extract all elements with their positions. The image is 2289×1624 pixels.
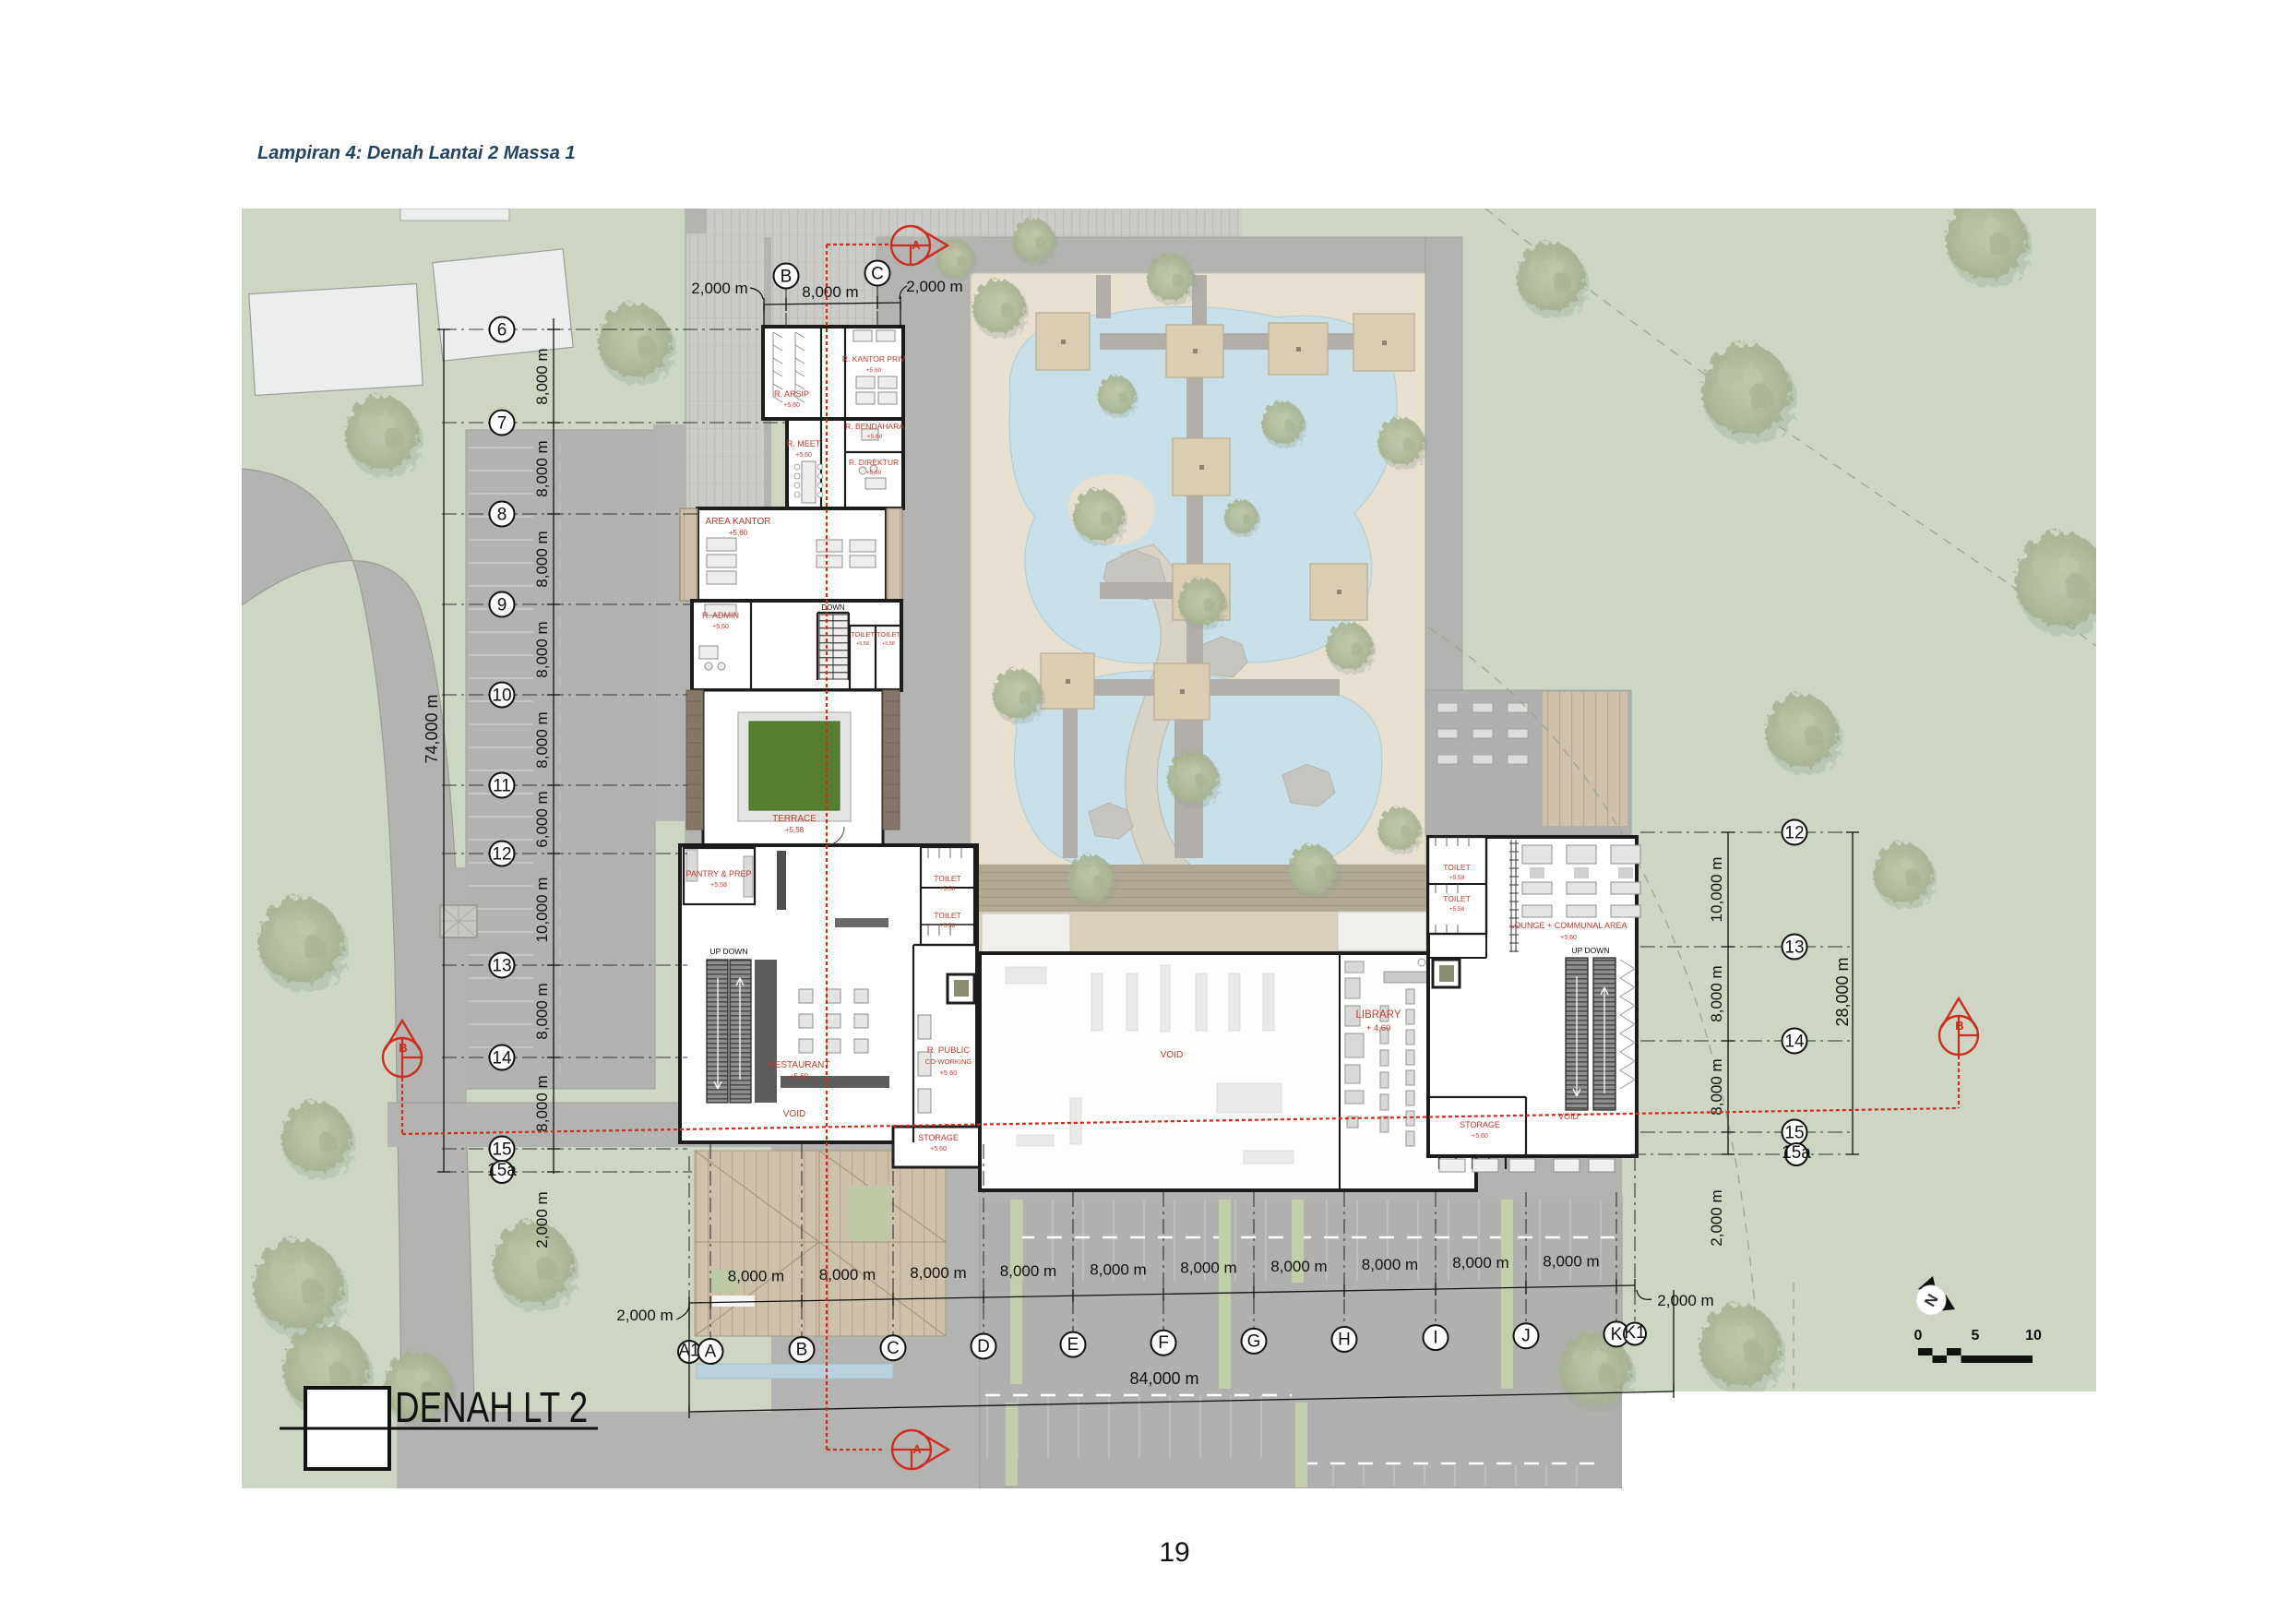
- svg-text:R. KANTOR PRIV: R. KANTOR PRIV: [842, 354, 906, 364]
- svg-text:PANTRY & PREP: PANTRY & PREP: [686, 869, 751, 878]
- svg-text:0: 0: [1914, 1328, 1923, 1343]
- svg-text:K: K: [1611, 1325, 1623, 1344]
- svg-text:R. PUBLIC: R. PUBLIC: [927, 1045, 971, 1056]
- svg-text:19: 19: [1159, 1537, 1189, 1568]
- svg-text:VOID: VOID: [1161, 1050, 1183, 1060]
- svg-text:CO-WORKING: CO-WORKING: [925, 1057, 972, 1066]
- svg-text:8,000 m: 8,000 m: [1180, 1260, 1236, 1277]
- svg-text:B: B: [1955, 1019, 1963, 1033]
- svg-text:TOILET: TOILET: [1443, 863, 1471, 872]
- svg-text:VOID: VOID: [783, 1109, 805, 1119]
- svg-text:8,000 m: 8,000 m: [533, 983, 551, 1039]
- svg-text:A: A: [705, 1343, 717, 1362]
- svg-text:G: G: [1247, 1331, 1261, 1351]
- svg-text:8,000 m: 8,000 m: [1000, 1262, 1056, 1280]
- svg-text:B: B: [399, 1041, 407, 1055]
- svg-text:I: I: [1433, 1329, 1437, 1348]
- svg-text:2,000 m: 2,000 m: [616, 1307, 673, 1324]
- svg-text:D: D: [977, 1337, 990, 1356]
- svg-text:TERRACE: TERRACE: [772, 814, 817, 824]
- svg-text:+5,60: +5,60: [783, 402, 800, 409]
- svg-text:C: C: [887, 1339, 900, 1358]
- svg-text:TOILET: TOILET: [934, 911, 961, 920]
- svg-text:2,000 m: 2,000 m: [1708, 1189, 1725, 1246]
- svg-text:+5,60: +5,60: [866, 470, 882, 476]
- svg-text:9: 9: [497, 596, 507, 615]
- svg-text:8,000 m: 8,000 m: [1708, 1058, 1725, 1115]
- svg-text:8,000 m: 8,000 m: [533, 531, 551, 587]
- svg-text:+5,60: +5,60: [866, 367, 882, 374]
- svg-text:13: 13: [492, 957, 511, 976]
- svg-text:8: 8: [497, 506, 507, 525]
- svg-text:R. DIREKTUR: R. DIREKTUR: [849, 458, 899, 467]
- svg-text:8,000 m: 8,000 m: [802, 283, 858, 301]
- svg-text:+5,58: +5,58: [940, 923, 956, 929]
- svg-text:8,000 m: 8,000 m: [533, 440, 551, 496]
- svg-text:UP DOWN: UP DOWN: [1572, 946, 1610, 955]
- svg-text:+5,58: +5,58: [710, 882, 727, 889]
- svg-text:10,000 m: 10,000 m: [1708, 857, 1725, 923]
- svg-text:8,000 m: 8,000 m: [910, 1264, 966, 1282]
- svg-text:10: 10: [2025, 1328, 2042, 1343]
- svg-text:Lampiran 4: Denah Lantai 2 Mas: Lampiran 4: Denah Lantai 2 Massa 1: [257, 143, 576, 163]
- svg-text:DOWN: DOWN: [821, 603, 845, 612]
- svg-text:TOILET: TOILET: [934, 874, 961, 883]
- svg-text:R. ADMIN: R. ADMIN: [702, 611, 739, 620]
- svg-text:74,000 m: 74,000 m: [423, 694, 441, 763]
- svg-text:12: 12: [492, 845, 511, 865]
- svg-text:B: B: [781, 268, 793, 287]
- svg-text:11: 11: [493, 777, 511, 796]
- svg-text:R. BENDAHARA: R. BENDAHARA: [845, 422, 904, 431]
- svg-text:+5,58: +5,58: [882, 641, 895, 647]
- svg-text:14: 14: [1784, 1033, 1805, 1052]
- svg-text:+5,58: +5,58: [785, 826, 805, 834]
- svg-text:A: A: [912, 238, 921, 252]
- svg-text:12: 12: [1784, 824, 1804, 843]
- svg-text:8,000 m: 8,000 m: [533, 348, 551, 404]
- svg-text:+5,60: +5,60: [790, 1072, 809, 1081]
- svg-text:RESTAURANT: RESTAURANT: [768, 1060, 829, 1070]
- svg-text:+5,58: +5,58: [940, 886, 956, 892]
- svg-text:15: 15: [1784, 1124, 1804, 1143]
- svg-text:28,000 m: 28,000 m: [1833, 957, 1852, 1026]
- svg-text:TOILET: TOILET: [851, 630, 876, 639]
- svg-text:6,000 m: 6,000 m: [533, 791, 551, 847]
- svg-text:+ 4,60: + 4,60: [1366, 1023, 1391, 1033]
- svg-text:VOID: VOID: [1558, 1112, 1580, 1121]
- svg-text:8,000 m: 8,000 m: [728, 1268, 784, 1285]
- svg-text:LIBRARY: LIBRARY: [1355, 1009, 1401, 1021]
- svg-text:+5,60: +5,60: [1472, 1133, 1488, 1140]
- svg-text:B: B: [796, 1341, 808, 1360]
- svg-text:84,000 m: 84,000 m: [1129, 1369, 1198, 1388]
- svg-text:2,000 m: 2,000 m: [691, 280, 747, 297]
- svg-text:DENAH LT 2: DENAH LT 2: [395, 1383, 588, 1431]
- svg-text:TOILET: TOILET: [876, 630, 901, 639]
- svg-text:2,000 m: 2,000 m: [533, 1191, 551, 1248]
- svg-text:+5,58: +5,58: [1449, 875, 1465, 881]
- svg-text:8,000 m: 8,000 m: [1452, 1254, 1508, 1272]
- svg-text:8,000 m: 8,000 m: [533, 621, 551, 677]
- svg-text:+5,58: +5,58: [1449, 906, 1465, 913]
- svg-text:C: C: [871, 265, 884, 284]
- svg-text:15: 15: [492, 1140, 511, 1160]
- svg-text:TOILET: TOILET: [1443, 894, 1471, 903]
- svg-text:R. MEET: R. MEET: [787, 439, 821, 448]
- svg-text:F: F: [1158, 1333, 1169, 1353]
- svg-text:14: 14: [492, 1049, 512, 1069]
- svg-text:R. ARSIP: R. ARSIP: [774, 389, 809, 399]
- svg-text:AREA KANTOR: AREA KANTOR: [706, 517, 771, 527]
- svg-text:10: 10: [492, 687, 511, 706]
- svg-text:STORAGE: STORAGE: [1460, 1120, 1500, 1129]
- svg-text:7: 7: [497, 414, 507, 434]
- svg-text:8,000 m: 8,000 m: [1708, 965, 1725, 1021]
- svg-text:+5,60: +5,60: [712, 624, 729, 630]
- svg-text:UP DOWN: UP DOWN: [710, 947, 748, 956]
- svg-text:13: 13: [1784, 938, 1804, 958]
- svg-text:K1: K1: [1624, 1323, 1645, 1343]
- svg-text:E: E: [1067, 1335, 1079, 1355]
- svg-text:8,000 m: 8,000 m: [533, 711, 551, 768]
- svg-text:8,000 m: 8,000 m: [1090, 1260, 1146, 1278]
- svg-text:A: A: [912, 1442, 922, 1456]
- svg-text:+5,58: +5,58: [856, 641, 869, 647]
- svg-text:J: J: [1521, 1327, 1531, 1346]
- svg-text:2,000 m: 2,000 m: [1657, 1292, 1713, 1309]
- svg-text:+5,60: +5,60: [940, 1069, 958, 1077]
- svg-text:8,000 m: 8,000 m: [533, 1075, 551, 1131]
- svg-text:5: 5: [1972, 1328, 1980, 1343]
- svg-text:8,000 m: 8,000 m: [1270, 1258, 1327, 1275]
- svg-text:15a: 15a: [487, 1161, 517, 1180]
- svg-text:15a: 15a: [1782, 1143, 1811, 1163]
- svg-text:8,000 m: 8,000 m: [1362, 1256, 1418, 1273]
- svg-text:+5,60: +5,60: [930, 1146, 947, 1152]
- svg-text:+5,60: +5,60: [1560, 935, 1577, 941]
- svg-text:+5,60: +5,60: [795, 452, 812, 459]
- svg-text:8,000 m: 8,000 m: [1543, 1252, 1599, 1270]
- svg-text:H: H: [1338, 1330, 1351, 1349]
- svg-text:+5,60: +5,60: [867, 434, 883, 440]
- svg-text:2,000 m: 2,000 m: [906, 278, 962, 295]
- svg-text:10,000 m: 10,000 m: [533, 878, 551, 943]
- svg-text:+5,60: +5,60: [729, 529, 748, 537]
- svg-text:6: 6: [497, 321, 507, 340]
- svg-text:LOUNGE + COMMUNAL AREA: LOUNGE + COMMUNAL AREA: [1510, 921, 1627, 930]
- svg-text:STORAGE: STORAGE: [918, 1133, 959, 1142]
